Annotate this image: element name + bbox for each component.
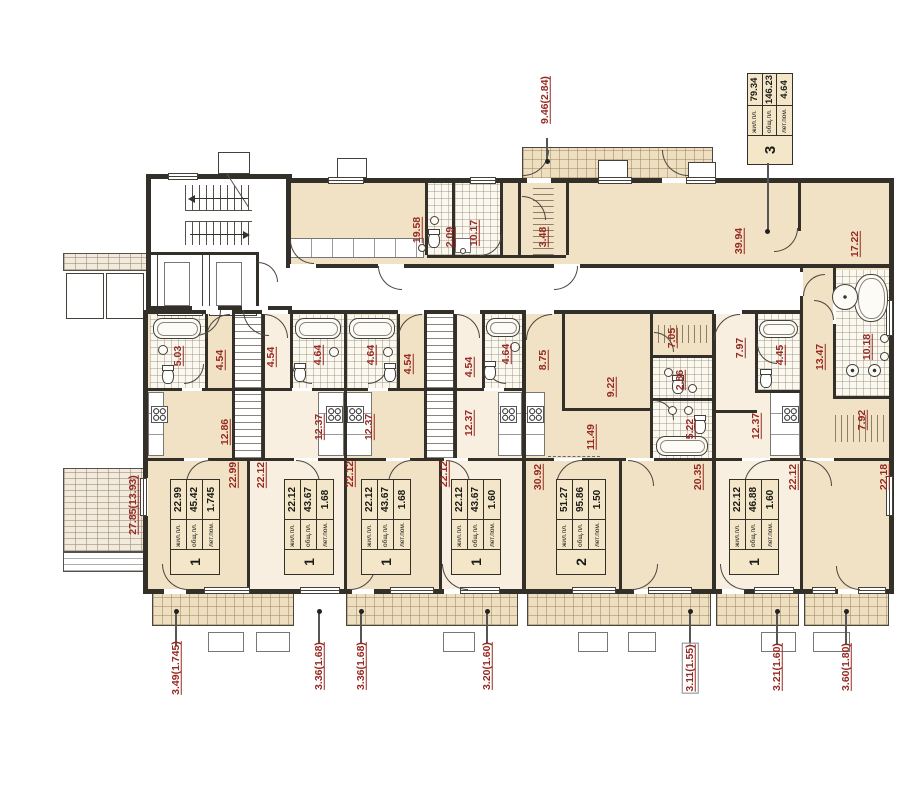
window xyxy=(390,587,434,594)
wall xyxy=(500,183,503,255)
area-value: 46.88 xyxy=(746,480,762,519)
room-area-label: 7.97 xyxy=(735,338,746,358)
window xyxy=(686,177,716,184)
room-area-label: 3.48 xyxy=(538,227,549,247)
toilet xyxy=(694,418,706,434)
door-opening xyxy=(662,178,686,183)
area-header: лет.пом. xyxy=(394,519,410,549)
door-swing-arc xyxy=(554,266,578,290)
area-value: 43.67 xyxy=(468,480,484,519)
apartment-info-table: 1жил.пл.22.99общ.пл.45.42лет.пом.1.745 xyxy=(170,479,220,575)
wall xyxy=(518,183,521,255)
area-value: 1.50 xyxy=(589,480,605,519)
window xyxy=(140,478,147,516)
apartment-info-table: 1жил.пл.22.12общ.пл.46.88лет.пом.1.60 xyxy=(729,479,779,575)
room-area-label: 4.54 xyxy=(215,350,226,370)
area-header: лет.пом. xyxy=(317,519,333,549)
bottom-balcony xyxy=(527,593,711,626)
leader-dot xyxy=(545,159,550,164)
apartment-areas: жил.пл. 79.34 общ.пл. 146.23 лет.пом. 4.… xyxy=(748,74,792,135)
sink-fixture xyxy=(460,248,466,254)
window xyxy=(572,587,616,594)
wall xyxy=(344,312,347,591)
wall xyxy=(566,183,569,255)
total-area-header: общ.пл. xyxy=(763,105,778,135)
room-area-label: 4.64 xyxy=(501,344,512,364)
wall xyxy=(712,312,716,591)
dimension-label: 3.36(1.68) xyxy=(314,642,325,690)
wall xyxy=(425,183,428,255)
ventilation-shaft xyxy=(426,312,454,458)
kitchen-counter xyxy=(770,392,800,456)
living-area-header: жил.пл. xyxy=(748,105,763,135)
area-value: 43.67 xyxy=(301,480,317,519)
apartment-number: 1 xyxy=(362,549,410,574)
wall xyxy=(290,312,293,390)
leader-dot xyxy=(775,609,780,614)
door-swing-arc xyxy=(378,266,402,290)
door-opening xyxy=(484,388,504,391)
door-opening xyxy=(182,388,202,391)
wall xyxy=(833,396,889,399)
bathtub xyxy=(486,318,520,337)
area-header: лет.пом. xyxy=(484,519,500,549)
dimension-label: 3.36(1.68) xyxy=(356,642,367,690)
area-value: 1.68 xyxy=(317,480,333,519)
sink-fixture xyxy=(832,284,858,310)
room-area-label: 22.99 xyxy=(228,462,239,488)
sink-fixture xyxy=(430,216,439,225)
room-area-label: 5.22 xyxy=(685,419,696,439)
sink-fixture xyxy=(880,352,889,361)
leader-dot xyxy=(765,229,770,234)
wall xyxy=(482,312,485,390)
room-area-label: 10.17 xyxy=(469,220,480,246)
wall xyxy=(522,312,526,591)
room-area-label: 22.18 xyxy=(879,464,890,490)
room-area-label: 19.58 xyxy=(412,217,423,243)
bathtub xyxy=(153,318,201,339)
dimension-label: 3.11(1.55) xyxy=(682,642,699,693)
sink-fixture xyxy=(668,406,677,415)
entrance-step xyxy=(66,273,104,319)
dimension-label: 3.49(1.745) xyxy=(171,641,182,695)
room-area-label: 12.37 xyxy=(751,413,762,439)
leader-line xyxy=(546,138,547,160)
area-value: 45.42 xyxy=(187,480,203,519)
area-header: общ.пл. xyxy=(378,519,394,549)
room-area-label: 5.03 xyxy=(173,346,184,366)
leader-dot xyxy=(359,609,364,614)
wall xyxy=(286,176,291,268)
dimension-label: 3.21(1.60) xyxy=(772,643,783,691)
door-opening xyxy=(292,388,312,391)
wall xyxy=(650,312,653,459)
kitchen-counter xyxy=(498,392,522,456)
wall xyxy=(287,264,805,268)
door-opening xyxy=(290,264,316,268)
summer-area-value: 4.64 xyxy=(777,74,792,105)
area-header: жил.пл. xyxy=(362,519,378,549)
area-value: 1.68 xyxy=(394,480,410,519)
door-swing-arc xyxy=(258,262,278,282)
area-header: жил.пл. xyxy=(285,519,301,549)
room-area-label: 4.45 xyxy=(775,345,786,365)
room-area-label: 9.22 xyxy=(606,377,617,397)
area-value: 95.86 xyxy=(573,480,589,519)
wall xyxy=(652,355,712,358)
apartment-info-table: 1жил.пл.22.12общ.пл.43.67лет.пом.1.60 xyxy=(451,479,501,575)
sink-fixture xyxy=(684,406,693,415)
leader-line xyxy=(318,611,319,644)
elevator-car xyxy=(164,262,190,306)
wall xyxy=(287,178,894,183)
door-opening xyxy=(838,589,858,594)
stove-burners xyxy=(347,406,364,423)
room-area-label: 7.05 xyxy=(667,328,678,348)
room-area-label: 4.54 xyxy=(266,347,277,367)
entrance-step xyxy=(106,273,144,319)
dimension-label: 3.60(1.80) xyxy=(841,643,852,691)
room-area-label: 10.18 xyxy=(862,334,873,360)
area-header: лет.пом. xyxy=(762,519,778,549)
area-header: лет.пом. xyxy=(589,519,605,549)
leader-line xyxy=(360,611,361,644)
bathtub xyxy=(854,274,888,322)
stove-burners xyxy=(326,406,343,423)
area-header: общ.пл. xyxy=(301,519,317,549)
leader-line xyxy=(767,163,768,230)
entrance-strip xyxy=(63,253,147,271)
lower-balcony-outline xyxy=(628,632,656,652)
dashed-opening xyxy=(548,456,600,458)
wall xyxy=(755,312,758,392)
window xyxy=(470,177,496,184)
room-area-label: 7.92 xyxy=(857,410,868,430)
apartment-info-table: 1жил.пл.22.12общ.пл.43.67лет.пом.1.68 xyxy=(361,479,411,575)
sink-fixture xyxy=(880,334,889,343)
wall xyxy=(889,180,894,593)
stove-burners xyxy=(151,406,168,423)
lower-balcony-outline xyxy=(443,632,475,652)
area-value: 1.745 xyxy=(203,480,219,519)
area-value: 22.12 xyxy=(285,480,301,519)
room-area-label: 11.49 xyxy=(586,424,597,450)
total-area-value: 146.23 xyxy=(763,74,778,105)
area-value: 22.12 xyxy=(362,480,378,519)
room-area-label: 22.12 xyxy=(256,462,267,488)
apartment-areas: жил.пл.51.27общ.пл.95.86лет.пом.1.50 xyxy=(557,480,605,549)
wall xyxy=(798,183,801,231)
room-area-label: 4.64 xyxy=(313,345,324,365)
bathtub xyxy=(349,318,395,339)
apartment-number: 1 xyxy=(171,549,219,574)
apartment-areas: жил.пл.22.99общ.пл.45.42лет.пом.1.745 xyxy=(171,480,219,549)
room-area-label: 4.64 xyxy=(366,345,377,365)
lower-balcony-outline xyxy=(578,632,608,652)
room-area-label: 4.54 xyxy=(403,354,414,374)
window xyxy=(204,587,250,594)
area-value: 51.27 xyxy=(557,480,573,519)
sink-fixture xyxy=(329,347,339,357)
leader-line xyxy=(776,611,777,645)
room-area-label: 12.86 xyxy=(220,419,231,445)
area-header: лет.пом. xyxy=(203,519,219,549)
area-header: жил.пл. xyxy=(452,519,468,549)
leader-line xyxy=(486,611,487,644)
room-area-label: 22.12 xyxy=(345,461,356,487)
apartment-areas: жил.пл.22.12общ.пл.43.67лет.пом.1.60 xyxy=(452,480,500,549)
apartment-areas: жил.пл.22.12общ.пл.46.88лет.пом.1.60 xyxy=(730,480,778,549)
architectural-floor-plan: 3 жил.пл. 79.34 общ.пл. 146.23 лет.пом. … xyxy=(0,0,900,807)
area-header: жил.пл. xyxy=(557,519,573,549)
apartment-number: 3 xyxy=(748,135,792,164)
lower-balcony-outline xyxy=(256,632,290,652)
apartment-3-info-table: 3 жил.пл. 79.34 общ.пл. 146.23 лет.пом. … xyxy=(747,73,793,165)
room-area-label: 2.09 xyxy=(445,227,456,247)
wall xyxy=(562,312,565,410)
leader-dot xyxy=(485,609,490,614)
window xyxy=(754,587,794,594)
room-area-label: 8.75 xyxy=(538,350,549,370)
area-value: 43.67 xyxy=(378,480,394,519)
roof-box xyxy=(218,152,250,174)
wall xyxy=(143,310,148,592)
leader-dot xyxy=(174,609,179,614)
toilet xyxy=(162,368,174,384)
stair-landing xyxy=(185,210,252,222)
room-area-label: 17.22 xyxy=(850,231,861,257)
apartment-areas: жил.пл.22.12общ.пл.43.67лет.пом.1.68 xyxy=(362,480,410,549)
bottom-balcony xyxy=(716,593,799,626)
bottom-balcony xyxy=(346,593,518,626)
window xyxy=(598,177,632,184)
wall xyxy=(427,255,566,258)
room-area-label: 2.86 xyxy=(675,370,686,390)
sink-fixture xyxy=(688,384,697,393)
stair-direction-arrow xyxy=(190,234,248,235)
area-header: общ.пл. xyxy=(187,519,203,549)
sink-fixture xyxy=(868,364,881,377)
wall xyxy=(232,312,235,458)
sink-fixture xyxy=(383,347,393,357)
window xyxy=(300,587,340,594)
leader-dot xyxy=(688,609,693,614)
wall xyxy=(146,174,151,312)
room-area-label: 12.37 xyxy=(464,410,475,436)
leader-dot xyxy=(844,609,849,614)
toilet xyxy=(428,232,440,248)
apartment-areas: жил.пл.22.12общ.пл.43.67лет.пом.1.68 xyxy=(285,480,333,549)
room-area-label: 22.12 xyxy=(439,461,450,487)
area-header: жил.пл. xyxy=(730,519,746,549)
toilet xyxy=(384,366,396,382)
wall xyxy=(755,390,800,393)
apartment-number: 1 xyxy=(452,549,500,574)
toilet xyxy=(484,364,496,380)
apartment-info-table: 2жил.пл.51.27общ.пл.95.86лет.пом.1.50 xyxy=(556,479,606,575)
wall xyxy=(652,398,712,401)
wall xyxy=(619,458,622,591)
wall xyxy=(562,408,652,411)
leader-line xyxy=(689,611,690,645)
door-opening xyxy=(352,589,374,594)
door-opening xyxy=(164,589,186,594)
room-area-label: 4.54 xyxy=(464,357,475,377)
summer-area-header: лет.пом. xyxy=(777,105,792,135)
leader-dot xyxy=(317,609,322,614)
apartment-number: 1 xyxy=(285,549,333,574)
room-area-label: 20.35 xyxy=(693,464,704,490)
door-opening xyxy=(722,589,744,594)
wall xyxy=(424,312,427,458)
stove-burners xyxy=(527,406,544,423)
toilet xyxy=(760,372,772,388)
room-area-label: 12.37 xyxy=(364,414,375,440)
bathtub xyxy=(759,320,798,338)
window xyxy=(648,587,692,594)
facade-box xyxy=(337,158,367,178)
wall xyxy=(397,312,400,390)
kitchen-counter xyxy=(525,392,545,456)
elevator-car xyxy=(216,262,242,306)
bathtub xyxy=(295,318,341,339)
lower-balcony-outline xyxy=(208,632,244,652)
room-area-label: 12.37 xyxy=(314,414,325,440)
door-opening xyxy=(368,388,388,391)
dimension-label: 27.85(13.93) xyxy=(128,475,139,535)
window xyxy=(328,177,364,184)
wall xyxy=(800,264,894,268)
sink-fixture xyxy=(418,244,426,252)
area-value: 22.99 xyxy=(171,480,187,519)
window xyxy=(858,587,886,594)
room-area-label: 22.12 xyxy=(788,464,799,490)
living-area-value: 79.34 xyxy=(748,74,763,105)
area-header: общ.пл. xyxy=(573,519,589,549)
room-area-label: 39.94 xyxy=(734,228,745,254)
wall xyxy=(800,264,803,591)
dimension-label: 3.20(1.60) xyxy=(482,642,493,690)
toilet xyxy=(294,366,306,382)
area-value: 1.60 xyxy=(484,480,500,519)
dimension-label: 9.46(2.84) xyxy=(540,76,551,124)
window xyxy=(168,173,198,180)
stove-burners xyxy=(782,406,799,423)
walkway xyxy=(63,552,145,572)
room-area-label: 30.92 xyxy=(533,464,544,490)
apartment-number: 1 xyxy=(730,549,778,574)
apartment-number: 2 xyxy=(557,549,605,574)
stove-burners xyxy=(500,406,517,423)
area-value: 1.60 xyxy=(762,480,778,519)
door-opening xyxy=(527,178,551,183)
stair-direction-arrow xyxy=(190,198,248,199)
area-header: общ.пл. xyxy=(468,519,484,549)
wall xyxy=(247,458,250,591)
area-header: общ.пл. xyxy=(746,519,762,549)
area-header: жил.пл. xyxy=(171,519,187,549)
room-area-label: 13.47 xyxy=(815,344,826,370)
sink-fixture xyxy=(846,364,859,377)
window xyxy=(812,587,836,594)
bathtub xyxy=(656,436,708,456)
area-value: 22.12 xyxy=(730,480,746,519)
wall xyxy=(148,388,345,391)
area-value: 22.12 xyxy=(452,480,468,519)
apartment-info-table: 1жил.пл.22.12общ.пл.43.67лет.пом.1.68 xyxy=(284,479,334,575)
wall xyxy=(148,252,256,255)
leader-line xyxy=(845,611,846,645)
sink-fixture xyxy=(158,345,168,355)
kitchen-counter xyxy=(148,392,164,456)
